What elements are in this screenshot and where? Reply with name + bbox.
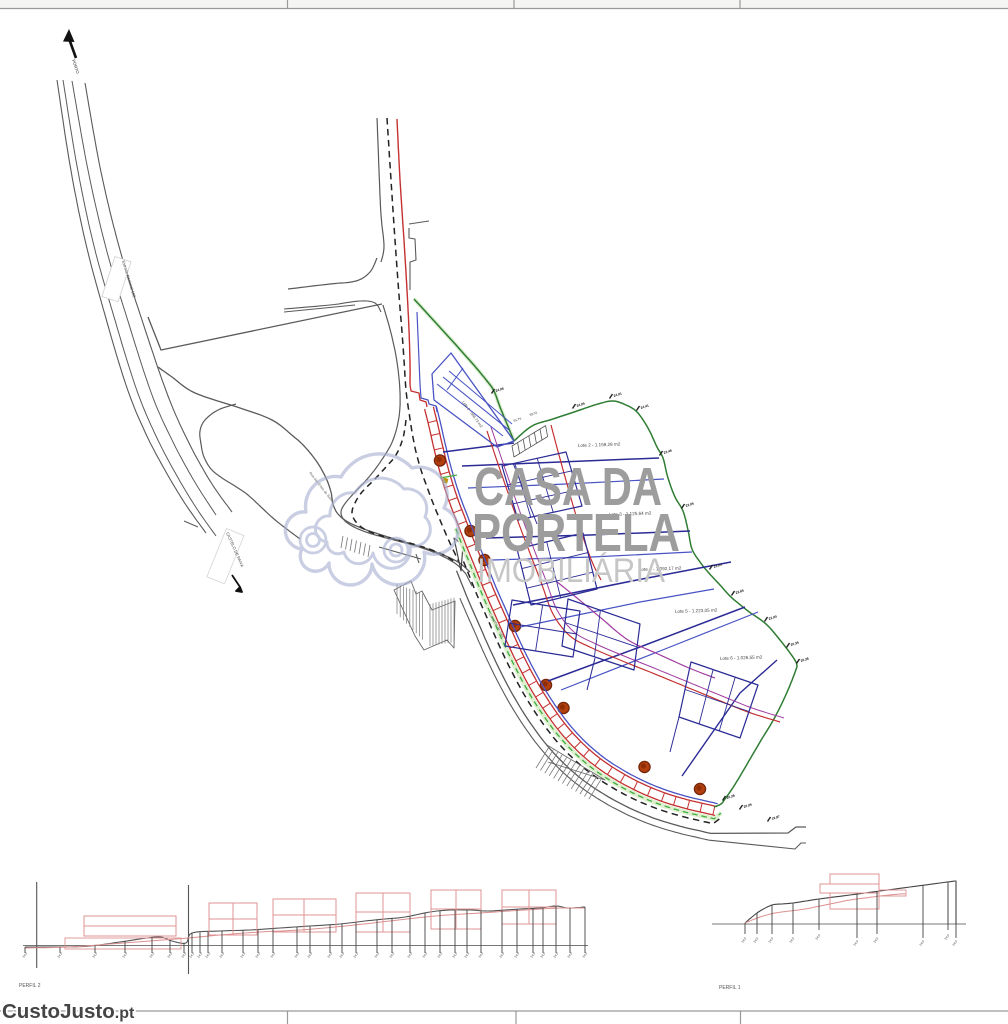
- svg-text:IMOBILIÁRIA: IMOBILIÁRIA: [477, 552, 665, 590]
- svg-text:PERFIL 2: PERFIL 2: [19, 983, 41, 989]
- svg-text:PERFIL 1: PERFIL 1: [719, 985, 741, 991]
